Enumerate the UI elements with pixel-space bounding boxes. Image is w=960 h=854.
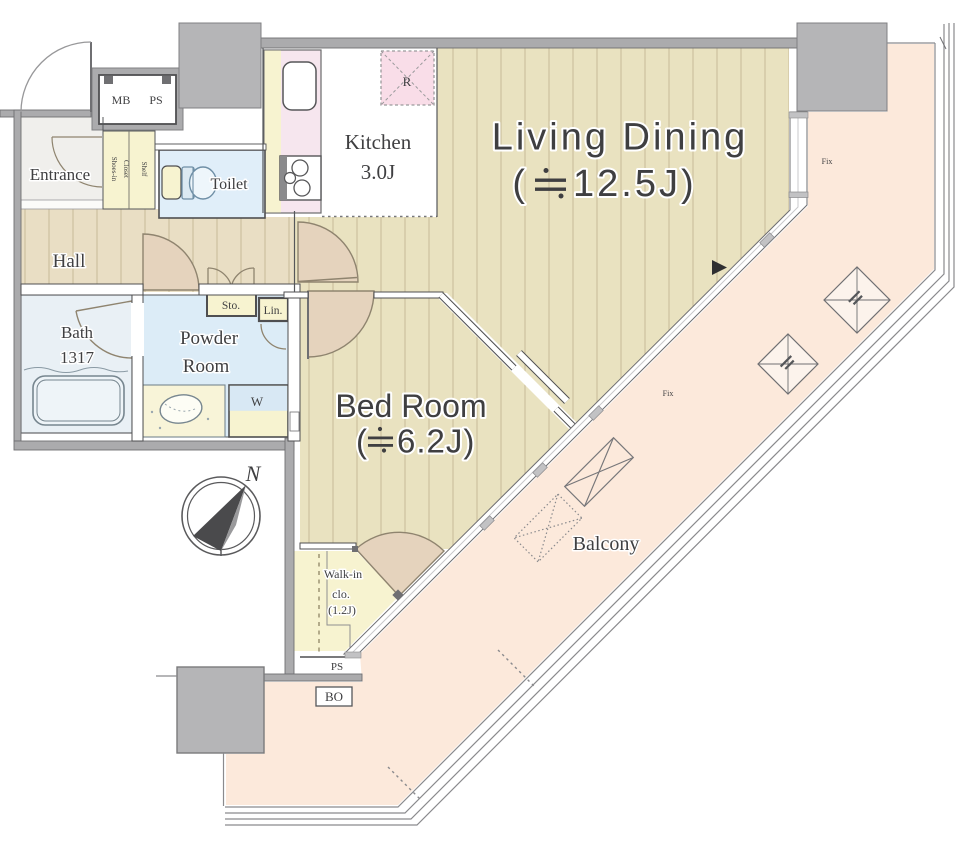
svg-text:BO: BO bbox=[325, 689, 343, 704]
svg-text:PS: PS bbox=[331, 661, 343, 673]
svg-text:3.0J: 3.0J bbox=[361, 160, 395, 184]
svg-text:Lin.: Lin. bbox=[264, 305, 283, 317]
svg-text:Bath: Bath bbox=[61, 323, 94, 342]
svg-text:Fix: Fix bbox=[663, 389, 674, 398]
svg-text:Living Dining: Living Dining bbox=[492, 117, 749, 159]
svg-text:12.5J): 12.5J) bbox=[573, 163, 697, 205]
svg-text:Bed Room: Bed Room bbox=[335, 388, 486, 424]
svg-text:Entrance: Entrance bbox=[30, 165, 90, 184]
svg-text:Sto.: Sto. bbox=[222, 300, 240, 312]
svg-text:Room: Room bbox=[183, 356, 230, 377]
svg-text:Toilet: Toilet bbox=[210, 176, 248, 193]
svg-text:clo.: clo. bbox=[332, 587, 350, 601]
svg-text:Fix: Fix bbox=[822, 157, 833, 166]
svg-text:Closet: Closet bbox=[122, 160, 130, 178]
svg-text:W: W bbox=[251, 394, 264, 409]
svg-text:PS: PS bbox=[149, 93, 162, 107]
svg-text:R: R bbox=[403, 74, 412, 89]
svg-text:Shoes-in: Shoes-in bbox=[110, 157, 118, 182]
svg-text:(: ( bbox=[512, 163, 528, 205]
svg-text:Kitchen: Kitchen bbox=[345, 130, 412, 154]
svg-text:1317: 1317 bbox=[60, 348, 95, 367]
svg-text:6.2J): 6.2J) bbox=[397, 423, 475, 460]
svg-text:Balcony: Balcony bbox=[573, 533, 640, 555]
svg-text:Powder: Powder bbox=[180, 328, 239, 349]
svg-text:(1.2J): (1.2J) bbox=[328, 603, 356, 617]
svg-text:Shelf: Shelf bbox=[140, 162, 148, 177]
svg-text:Walk-in: Walk-in bbox=[324, 567, 362, 581]
svg-text:MB: MB bbox=[112, 93, 131, 107]
svg-text:N: N bbox=[245, 461, 262, 486]
svg-text:Hall: Hall bbox=[53, 251, 86, 272]
svg-text:(: ( bbox=[356, 423, 368, 460]
